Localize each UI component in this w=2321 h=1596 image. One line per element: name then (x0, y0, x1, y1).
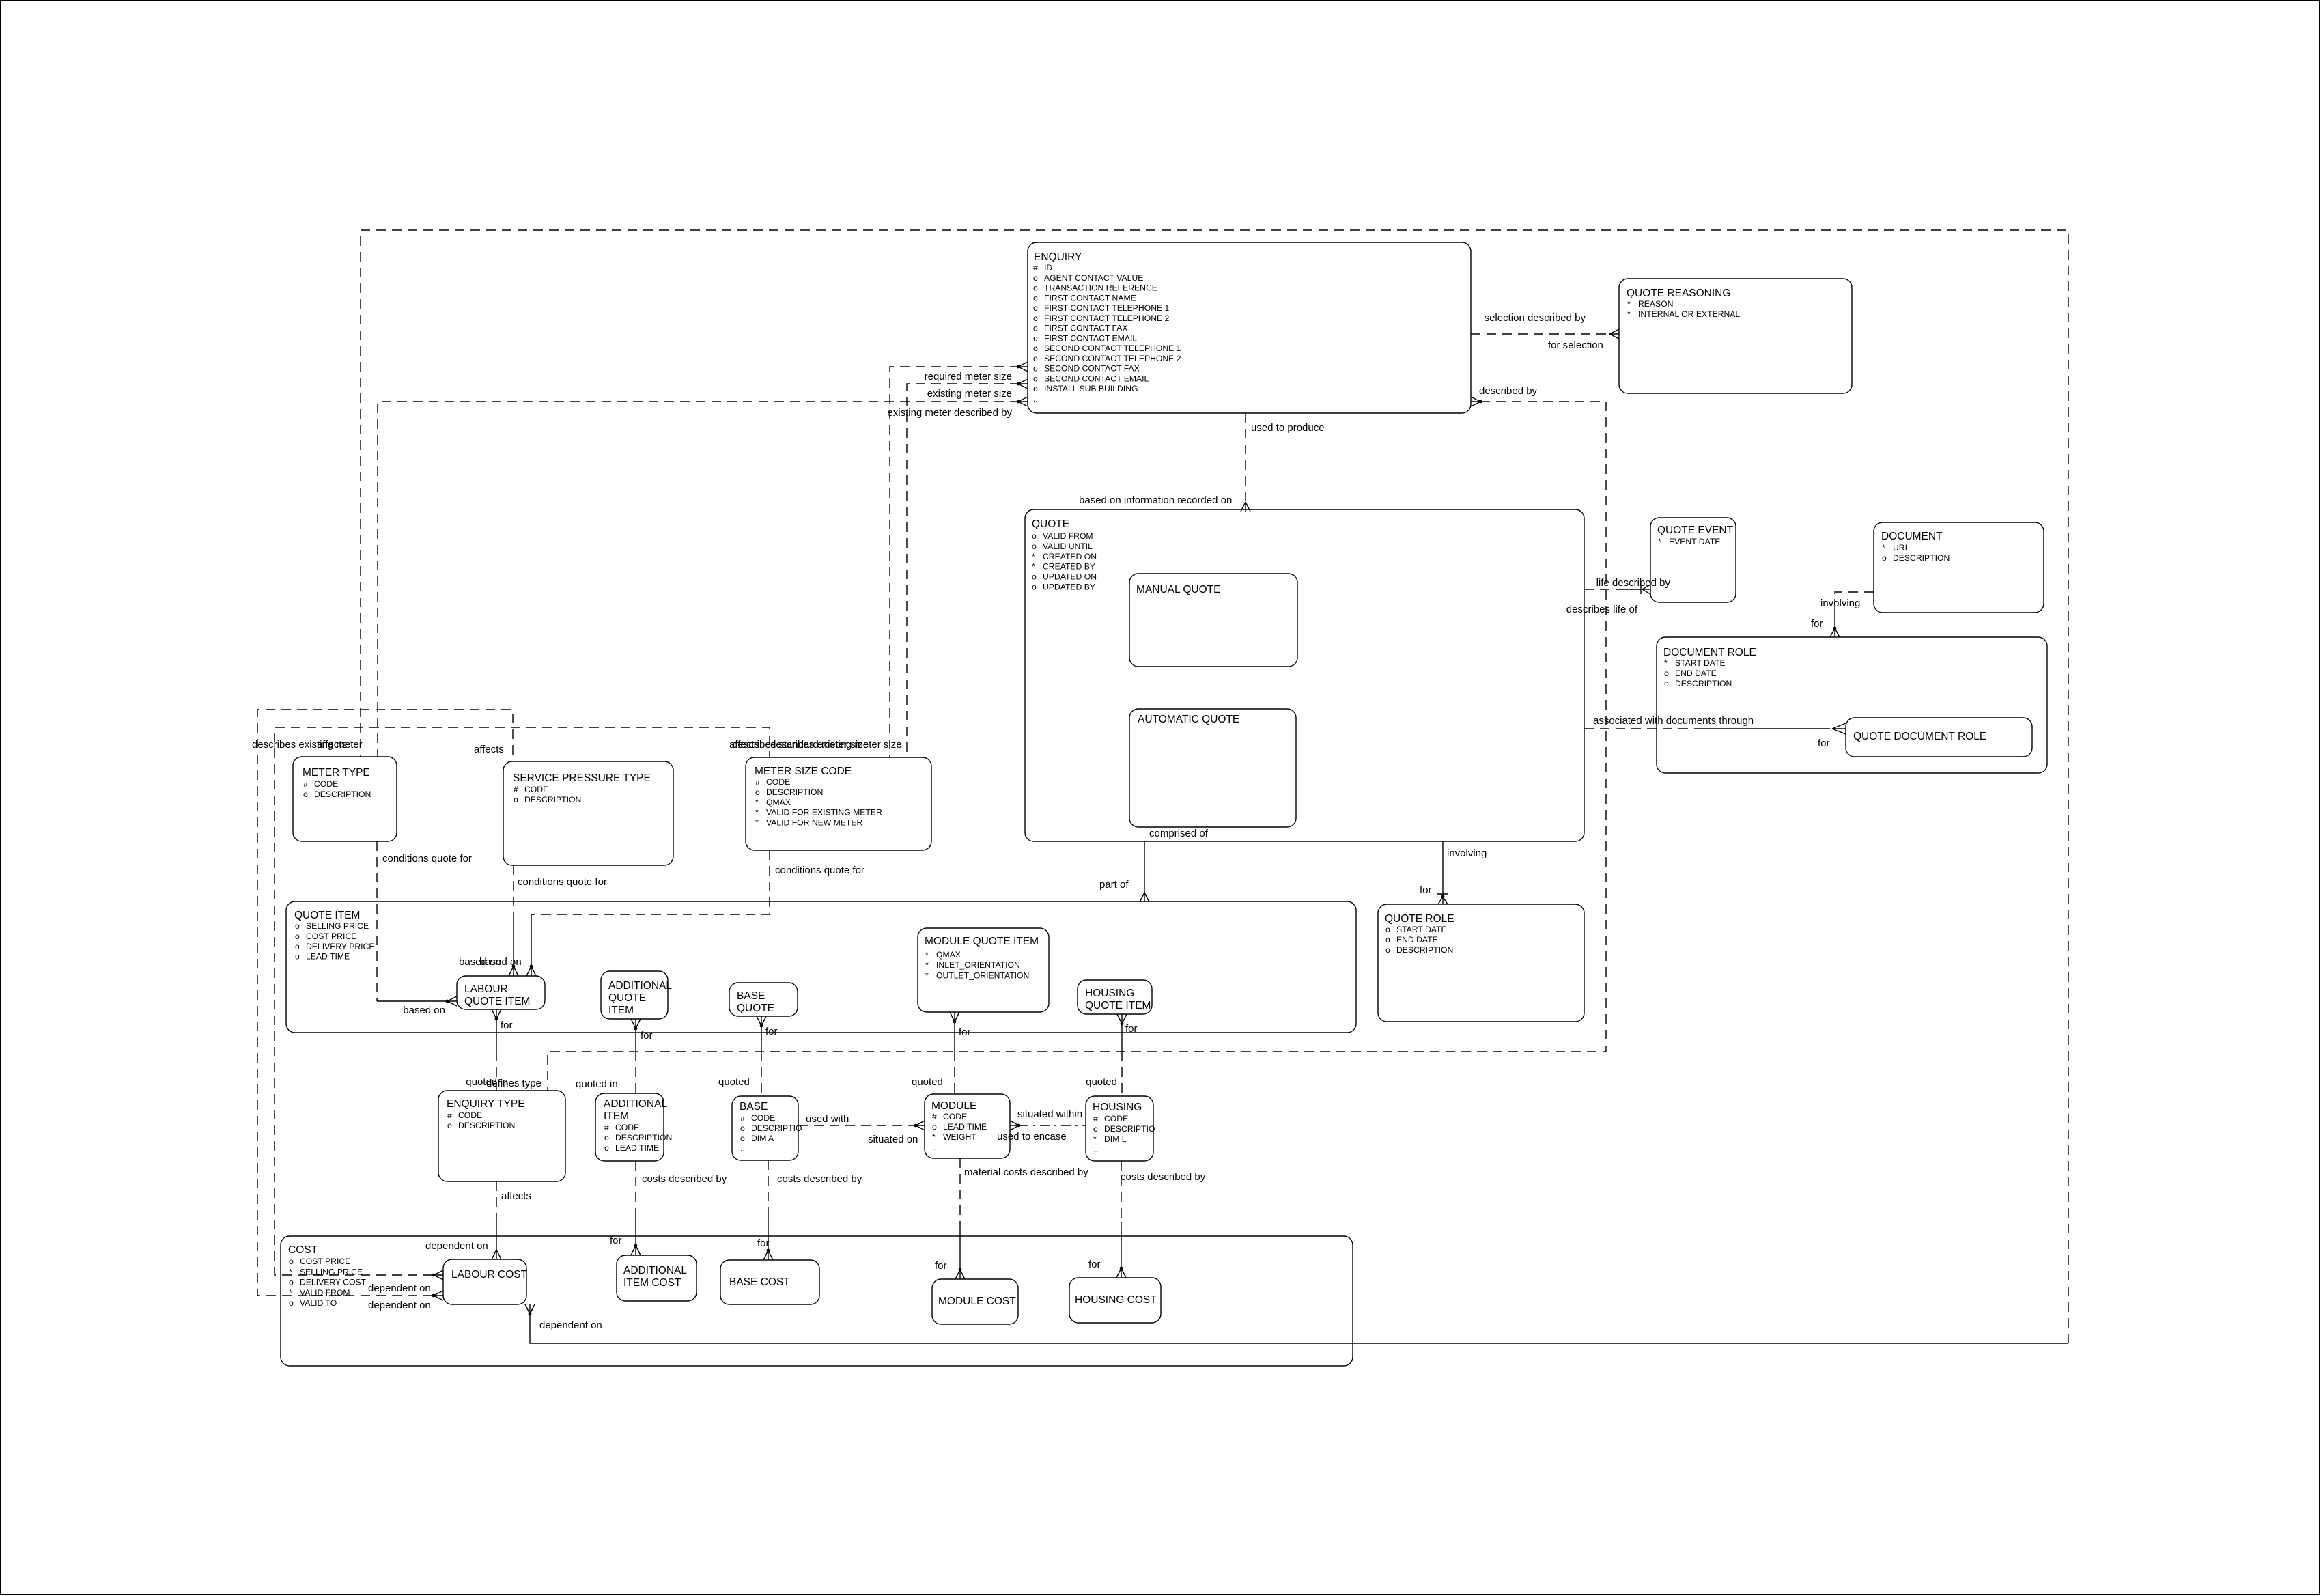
svg-text:for: for (501, 1020, 513, 1031)
svg-text:SECOND CONTACT FAX: SECOND CONTACT FAX (1044, 364, 1140, 374)
svg-text:*: * (1882, 543, 1885, 552)
svg-text:*: * (1093, 1134, 1097, 1144)
svg-text:o: o (1033, 344, 1038, 353)
svg-text:DESCRIPTION: DESCRIPTION (1396, 945, 1453, 955)
svg-text:COST: COST (288, 1244, 318, 1256)
svg-text:TRANSACTION REFERENCE: TRANSACTION REFERENCE (1044, 283, 1157, 293)
svg-text:o: o (755, 787, 760, 797)
svg-text:material costs described by: material costs described by (964, 1166, 1088, 1178)
svg-text:CODE: CODE (943, 1112, 967, 1121)
svg-text:dependent on: dependent on (368, 1283, 431, 1294)
svg-text:o: o (1664, 669, 1669, 678)
svg-text:#: # (932, 1112, 937, 1121)
svg-text:part of: part of (1099, 879, 1129, 891)
svg-text:CREATED ON: CREATED ON (1043, 552, 1097, 561)
svg-text:START DATE: START DATE (1396, 925, 1447, 934)
svg-text:FIRST CONTACT EMAIL: FIRST CONTACT EMAIL (1044, 333, 1137, 343)
svg-text:QUOTE DOCUMENT ROLE: QUOTE DOCUMENT ROLE (1853, 731, 1986, 742)
svg-text:QUOTE: QUOTE (608, 992, 646, 1004)
svg-text:UPDATED BY: UPDATED BY (1043, 583, 1095, 592)
svg-text:COST PRICE: COST PRICE (306, 932, 356, 941)
svg-text:for: for (610, 1235, 622, 1246)
svg-text:required meter size: required meter size (925, 371, 1012, 382)
svg-text:CODE: CODE (1104, 1114, 1128, 1123)
svg-text:for: for (641, 1030, 653, 1041)
svg-text:QUOTE ITEM: QUOTE ITEM (294, 910, 360, 921)
svg-text:FIRST CONTACT TELEPHONE 2: FIRST CONTACT TELEPHONE 2 (1044, 313, 1170, 323)
svg-text:METER TYPE: METER TYPE (303, 767, 370, 779)
svg-text:quoted in: quoted in (576, 1078, 618, 1090)
svg-text:o: o (514, 795, 518, 804)
svg-text:o: o (740, 1123, 745, 1133)
svg-text:existing meter described by: existing meter described by (887, 407, 1012, 419)
svg-text:HOUSING: HOUSING (1085, 988, 1134, 999)
svg-text:affects: affects (474, 744, 504, 755)
svg-text:LEAD TIME: LEAD TIME (306, 952, 350, 962)
svg-text:OUTLET_ORIENTATION: OUTLET_ORIENTATION (936, 970, 1029, 980)
svg-text:INTERNAL OR EXTERNAL: INTERNAL OR EXTERNAL (1638, 309, 1740, 319)
svg-text:ENQUIRY TYPE: ENQUIRY TYPE (447, 1098, 525, 1110)
svg-text:MODULE: MODULE (931, 1100, 976, 1112)
svg-text:o: o (740, 1134, 745, 1143)
svg-text:#: # (755, 777, 760, 787)
svg-text:QMAX: QMAX (766, 798, 791, 807)
svg-text:used to encase: used to encase (997, 1131, 1067, 1143)
svg-text:DESCRIPTIO: DESCRIPTIO (751, 1123, 802, 1133)
svg-text:ADDITIONAL: ADDITIONAL (604, 1098, 667, 1110)
svg-text:o: o (1033, 324, 1038, 333)
svg-text:AUTOMATIC QUOTE: AUTOMATIC QUOTE (1138, 714, 1239, 725)
svg-text:LEAD TIME: LEAD TIME (943, 1122, 987, 1132)
svg-text:for: for (1125, 1023, 1138, 1035)
svg-text:ITEM COST: ITEM COST (623, 1277, 681, 1289)
svg-text:for: for (1818, 738, 1830, 749)
svg-text:affects: affects (729, 739, 759, 751)
svg-text:UPDATED ON: UPDATED ON (1043, 572, 1097, 582)
svg-text:dependent on: dependent on (425, 1240, 488, 1252)
svg-text:o: o (604, 1143, 609, 1153)
svg-text:VALID FOR NEW METER: VALID FOR NEW METER (766, 818, 862, 828)
svg-text:SECOND CONTACT EMAIL: SECOND CONTACT EMAIL (1044, 374, 1149, 384)
svg-text:SELLING PRICE: SELLING PRICE (306, 921, 369, 931)
svg-text:o: o (289, 1257, 294, 1266)
svg-text:ID: ID (1044, 263, 1052, 272)
svg-text:for: for (1811, 618, 1823, 630)
svg-text:...: ... (1093, 1145, 1100, 1154)
svg-text:conditions quote for: conditions quote for (518, 876, 607, 888)
svg-text:for selection: for selection (1548, 339, 1603, 351)
svg-text:LABOUR COST: LABOUR COST (451, 1269, 528, 1280)
svg-text:DESCRIPTION: DESCRIPTION (314, 789, 371, 799)
svg-text:selection described by: selection described by (1485, 312, 1586, 324)
svg-text:QUOTE ROLE: QUOTE ROLE (1385, 913, 1454, 925)
svg-text:SERVICE PRESSURE TYPE: SERVICE PRESSURE TYPE (513, 772, 651, 784)
svg-text:o: o (289, 1278, 294, 1287)
svg-text:DELIVERY COST: DELIVERY COST (300, 1278, 367, 1287)
svg-text:o: o (1033, 303, 1038, 313)
svg-text:comprised of: comprised of (1149, 828, 1209, 839)
svg-text:END DATE: END DATE (1675, 669, 1717, 678)
svg-text:DESCRIPTIO: DESCRIPTIO (1104, 1124, 1155, 1134)
svg-text:o: o (303, 789, 308, 799)
svg-text:DOCUMENT ROLE: DOCUMENT ROLE (1663, 647, 1756, 658)
svg-text:for: for (959, 1026, 971, 1038)
svg-text:DIM L: DIM L (1104, 1134, 1127, 1144)
svg-text:...: ... (740, 1144, 747, 1153)
svg-text:MODULE COST: MODULE COST (938, 1296, 1016, 1307)
svg-text:LEAD TIME: LEAD TIME (615, 1143, 659, 1153)
svg-text:VALID FROM: VALID FROM (1043, 531, 1093, 541)
svg-text:COST PRICE: COST PRICE (300, 1257, 350, 1266)
svg-text:#: # (604, 1123, 609, 1132)
svg-text:*: * (289, 1288, 292, 1298)
svg-text:#: # (1033, 263, 1038, 272)
svg-text:DESCRIPTION: DESCRIPTION (524, 795, 581, 804)
svg-text:associated with documents thro: associated with documents through (1593, 715, 1754, 727)
svg-text:MODULE QUOTE ITEM: MODULE QUOTE ITEM (925, 936, 1039, 947)
svg-text:VALID FROM: VALID FROM (300, 1288, 350, 1298)
svg-text:*: * (1627, 309, 1631, 319)
svg-text:o: o (1385, 945, 1390, 955)
svg-text:BASE: BASE (740, 1101, 768, 1112)
svg-text:*: * (932, 1132, 936, 1142)
svg-text:ADDITIONAL: ADDITIONAL (608, 980, 672, 992)
svg-text:o: o (932, 1122, 937, 1132)
svg-text:describes existing meter size: describes existing meter size (770, 739, 902, 751)
svg-text:CODE: CODE (524, 785, 548, 794)
svg-text:*: * (755, 798, 759, 807)
svg-text:o: o (1882, 553, 1887, 563)
svg-text:#: # (447, 1110, 452, 1120)
svg-text:URI: URI (1893, 543, 1907, 552)
svg-text:DELIVERY PRICE: DELIVERY PRICE (306, 942, 374, 951)
svg-text:o: o (1385, 925, 1390, 934)
svg-text:o: o (295, 942, 300, 951)
svg-text:describes life of: describes life of (1566, 604, 1638, 615)
svg-text:LABOUR: LABOUR (464, 983, 508, 995)
svg-text:...: ... (1033, 394, 1040, 404)
svg-text:END DATE: END DATE (1396, 935, 1438, 944)
svg-text:FIRST CONTACT NAME: FIRST CONTACT NAME (1044, 293, 1136, 303)
svg-text:QMAX: QMAX (936, 950, 961, 960)
svg-text:BASE: BASE (737, 990, 765, 1002)
svg-text:SECOND CONTACT TELEPHONE 1: SECOND CONTACT TELEPHONE 1 (1044, 344, 1181, 353)
svg-text:QUOTE: QUOTE (737, 1003, 774, 1014)
svg-text:#: # (514, 785, 518, 794)
svg-text:EVENT DATE: EVENT DATE (1669, 537, 1720, 546)
svg-text:FIRST CONTACT TELEPHONE 1: FIRST CONTACT TELEPHONE 1 (1044, 303, 1170, 313)
svg-text:*: * (1664, 658, 1668, 668)
svg-text:o: o (1033, 374, 1038, 384)
svg-text:CODE: CODE (615, 1123, 639, 1132)
svg-text:ITEM: ITEM (604, 1110, 629, 1122)
svg-text:o: o (1664, 679, 1669, 688)
svg-text:costs described by: costs described by (642, 1173, 727, 1185)
svg-text:ADDITIONAL: ADDITIONAL (623, 1265, 687, 1276)
svg-text:o: o (604, 1133, 609, 1143)
svg-text:DESCRIPTION: DESCRIPTION (1675, 679, 1732, 688)
svg-text:DESCRIPTION: DESCRIPTION (615, 1133, 672, 1143)
svg-text:o: o (1032, 542, 1037, 551)
svg-text:affects: affects (501, 1190, 531, 1202)
svg-text:MANUAL QUOTE: MANUAL QUOTE (1136, 584, 1220, 596)
svg-text:AGENT CONTACT VALUE: AGENT CONTACT VALUE (1044, 273, 1143, 283)
svg-text:for: for (1088, 1259, 1101, 1270)
svg-text:involving: involving (1447, 848, 1487, 859)
svg-text:VALID TO: VALID TO (300, 1298, 337, 1308)
svg-text:o: o (295, 921, 300, 931)
svg-text:HOUSING COST: HOUSING COST (1075, 1294, 1157, 1306)
svg-text:#: # (303, 779, 308, 789)
svg-text:o: o (1033, 313, 1038, 323)
svg-text:DESCRIPTION: DESCRIPTION (1893, 553, 1950, 563)
svg-text:DESCRIPTION: DESCRIPTION (766, 787, 823, 797)
svg-text:START DATE: START DATE (1675, 658, 1726, 668)
svg-text:CODE: CODE (458, 1110, 482, 1120)
svg-text:quoted in: quoted in (466, 1076, 508, 1088)
svg-text:o: o (1093, 1124, 1098, 1134)
svg-text:HOUSING: HOUSING (1093, 1102, 1142, 1113)
svg-text:involving: involving (1820, 598, 1860, 609)
svg-text:DOCUMENT: DOCUMENT (1881, 531, 1943, 542)
svg-text:QUOTE REASONING: QUOTE REASONING (1627, 288, 1730, 299)
svg-text:QUOTE ITEM: QUOTE ITEM (464, 996, 530, 1007)
svg-text:costs described by: costs described by (1121, 1171, 1206, 1183)
svg-text:CREATED BY: CREATED BY (1043, 562, 1095, 572)
svg-text:*: * (1032, 562, 1035, 572)
svg-text:for: for (1420, 884, 1432, 896)
svg-text:used to produce: used to produce (1251, 422, 1325, 434)
svg-text:conditions quote for: conditions quote for (775, 865, 864, 876)
svg-text:*: * (925, 950, 929, 960)
svg-text:o: o (1033, 364, 1038, 374)
svg-text:based on: based on (479, 956, 522, 968)
svg-text:CODE: CODE (766, 777, 790, 787)
svg-text:for: for (765, 1026, 778, 1037)
svg-text:o: o (289, 1298, 294, 1308)
svg-text:dependent on: dependent on (539, 1319, 602, 1331)
svg-text:quoted: quoted (912, 1076, 943, 1088)
svg-text:WEIGHT: WEIGHT (943, 1132, 976, 1142)
svg-text:o: o (1033, 273, 1038, 283)
svg-text:situated within: situated within (1017, 1108, 1082, 1120)
svg-text:ENQUIRY: ENQUIRY (1034, 251, 1082, 263)
svg-text:REASON: REASON (1638, 299, 1673, 309)
svg-text:*: * (1032, 552, 1035, 561)
svg-text:*: * (925, 960, 929, 970)
svg-text:SECOND CONTACT TELEPHONE 2: SECOND CONTACT TELEPHONE 2 (1044, 354, 1181, 363)
svg-text:situated on: situated on (868, 1134, 918, 1145)
svg-text:o: o (1033, 293, 1038, 303)
svg-text:*: * (755, 818, 759, 828)
svg-text:#: # (1093, 1114, 1098, 1123)
svg-text:quoted: quoted (1086, 1076, 1117, 1088)
svg-text:VALID FOR EXISTING METER: VALID FOR EXISTING METER (766, 808, 882, 817)
svg-text:FIRST CONTACT FAX: FIRST CONTACT FAX (1044, 324, 1128, 333)
svg-text:QUOTE ITEM: QUOTE ITEM (1085, 1000, 1151, 1011)
svg-text:for: for (935, 1260, 947, 1272)
svg-text:...: ... (932, 1143, 939, 1152)
svg-text:conditions quote for: conditions quote for (382, 853, 472, 865)
svg-text:dependent on: dependent on (368, 1300, 431, 1311)
svg-text:INLET_ORIENTATION: INLET_ORIENTATION (936, 960, 1020, 970)
svg-text:VALID UNTIL: VALID UNTIL (1043, 542, 1093, 551)
svg-text:o: o (295, 932, 300, 941)
svg-text:INSTALL SUB BUILDING: INSTALL SUB BUILDING (1044, 384, 1138, 393)
svg-text:o: o (1033, 283, 1038, 293)
svg-text:affects: affects (317, 739, 347, 751)
svg-text:o: o (295, 952, 300, 962)
svg-text:QUOTE EVENT: QUOTE EVENT (1657, 524, 1734, 536)
svg-text:*: * (755, 808, 759, 817)
svg-text:*: * (1627, 299, 1631, 309)
svg-text:o: o (1385, 935, 1390, 944)
svg-text:QUOTE: QUOTE (1032, 518, 1069, 530)
svg-text:based on information recorded: based on information recorded on (1079, 494, 1232, 506)
svg-text:DESCRIPTION: DESCRIPTION (458, 1121, 515, 1130)
svg-text:*: * (1658, 537, 1661, 546)
svg-text:CODE: CODE (314, 779, 338, 789)
svg-text:existing meter size: existing meter size (927, 388, 1012, 400)
svg-text:o: o (1033, 384, 1038, 393)
svg-text:used with: used with (806, 1113, 849, 1125)
svg-text:o: o (1033, 354, 1038, 363)
svg-text:BASE COST: BASE COST (729, 1276, 790, 1288)
svg-text:based on: based on (403, 1005, 445, 1016)
svg-text:#: # (740, 1113, 745, 1123)
svg-text:o: o (1033, 333, 1038, 343)
svg-text:costs described by: costs described by (777, 1173, 862, 1185)
svg-text:o: o (1032, 583, 1037, 592)
svg-text:o: o (447, 1121, 452, 1130)
svg-text:ITEM: ITEM (608, 1005, 634, 1016)
svg-text:DIM A: DIM A (751, 1134, 774, 1143)
svg-text:o: o (1032, 572, 1037, 582)
svg-text:described by: described by (1479, 385, 1538, 397)
svg-text:CODE: CODE (751, 1113, 775, 1123)
svg-text:for: for (757, 1237, 770, 1249)
svg-text:METER SIZE CODE: METER SIZE CODE (755, 766, 852, 777)
svg-text:o: o (1032, 531, 1037, 541)
svg-text:life described by: life described by (1596, 577, 1671, 589)
svg-text:quoted: quoted (718, 1076, 750, 1088)
svg-text:*: * (925, 970, 929, 980)
